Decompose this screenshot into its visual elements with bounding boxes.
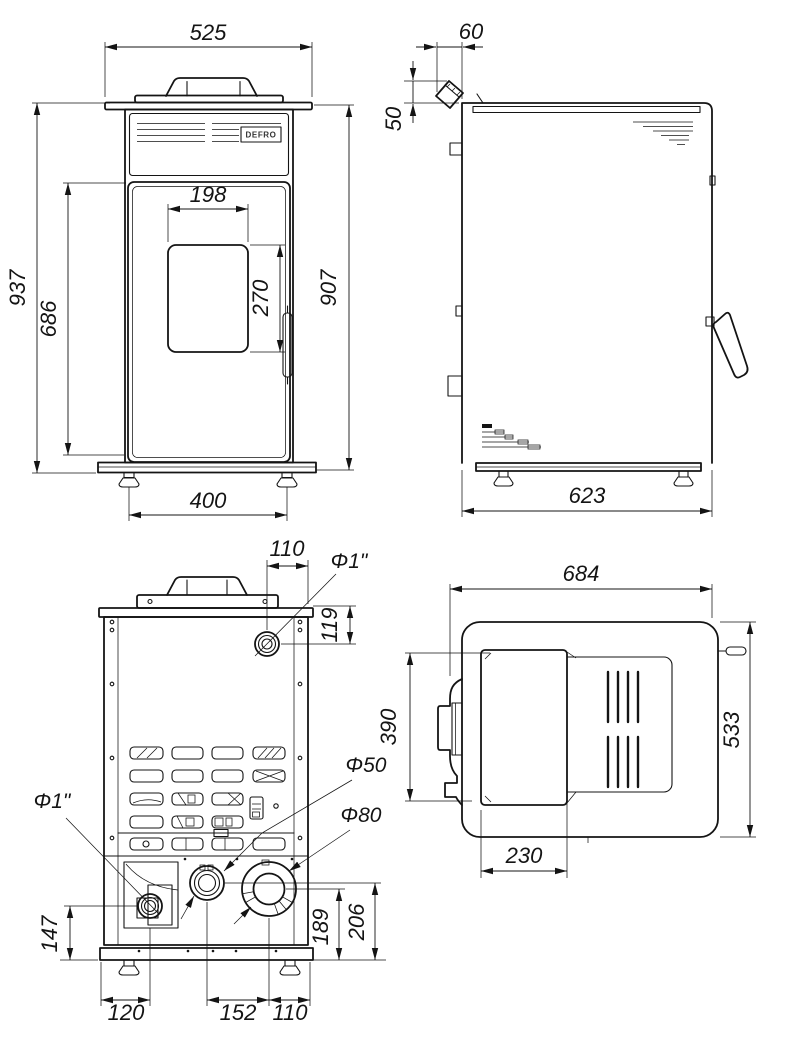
label-port-mid: Φ50: [346, 754, 387, 777]
dim-back-port-mid-height: 206: [344, 903, 369, 941]
dim-front-feet-span: 400: [190, 488, 227, 513]
dim-back-port-left-offset: 120: [108, 1000, 145, 1025]
dim-side-flue-drop: 50: [381, 106, 406, 131]
technical-drawing-sheet: DEFRO 525 937 6: [0, 0, 798, 1042]
dim-back-port-offset: 110: [269, 536, 305, 561]
dim-top-depth: 533: [719, 711, 744, 748]
dim-top-width: 684: [563, 561, 600, 586]
dim-front-height-total: 937: [5, 269, 30, 306]
label-port-top: Φ1": [331, 550, 369, 573]
dim-back-port-depth: 119: [317, 607, 342, 642]
dim-top-lid-depth: 390: [376, 708, 401, 745]
dim-side-flue-offset: 60: [459, 19, 484, 44]
dim-front-height-door: 686: [36, 300, 61, 337]
dim-front-height-body: 907: [316, 269, 341, 306]
brand-logo-text: DEFRO: [246, 131, 277, 140]
sheet-background: [0, 0, 798, 1042]
dim-side-depth: 623: [569, 483, 606, 508]
dim-back-flue-height: 189: [308, 909, 333, 946]
dim-back-port-spacing: 152: [220, 1000, 257, 1025]
dim-front-window-width: 198: [190, 182, 227, 207]
dim-back-flue-edge-offset: 110: [272, 1000, 308, 1025]
top-hopper-lid: [481, 650, 567, 805]
stove-dimension-drawing: DEFRO 525 937 6: [0, 0, 798, 1042]
dim-front-window-height: 270: [248, 279, 273, 317]
dim-front-width: 525: [190, 20, 227, 45]
dim-back-port-left-height: 147: [37, 915, 62, 952]
label-flue: Φ80: [341, 804, 382, 827]
dim-top-lid-width: 230: [505, 843, 543, 868]
label-port-left: Φ1": [34, 790, 72, 813]
